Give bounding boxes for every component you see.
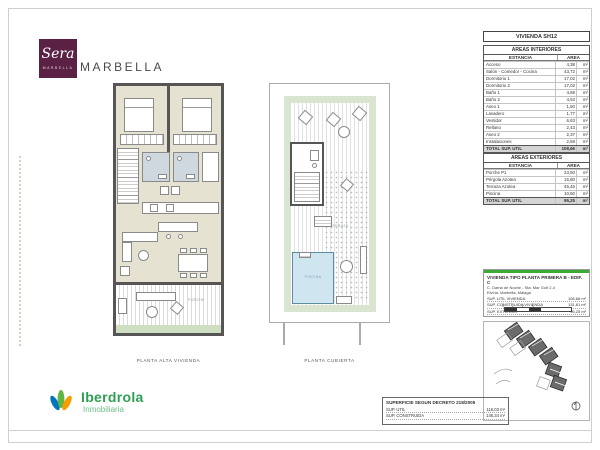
table-title: AREAS EXTERIORES [484,154,589,163]
table-row: Pérgola Azotea15,80m² [484,176,589,183]
cell: m² [576,69,589,75]
coffee-table-icon [138,250,149,261]
chair-icon [190,248,197,253]
cell: 116,03 m² [486,407,505,412]
cell: m² [576,125,589,131]
cell: TOTAL SUP. UTIL [484,198,555,204]
toilet-room [310,150,319,161]
outdoor-table-icon [340,260,353,273]
toilet-icon [177,156,182,161]
sink-icon [186,174,195,179]
cell: 108,66 [555,146,576,152]
footer-brand: Iberdrola Inmobiliaria [47,387,177,427]
scale-bar [504,307,572,312]
dining-table-icon [178,254,208,272]
wardrobe-icon [173,134,217,145]
column-header-area: AREA [557,55,589,60]
table-row: Aseo 22,37m² [484,131,589,138]
pool: PISCINA [292,252,334,304]
cell: m² [576,170,589,176]
porch-deck: PORCHE [116,285,221,325]
cell: 108,66 m² [568,296,586,301]
cell: 43,72 [555,69,576,75]
cell: Instalaciones [484,139,555,145]
terrace-label: TERRAZA [330,224,348,228]
toilet-icon [146,156,151,161]
decree-surface-box: SUPERFICIE SEGUN DECRETO 218/2005 SUP. U… [382,397,509,425]
cell: 17,02 [555,76,576,82]
cell: SUP. UTIL [386,407,405,412]
cell: m² [576,76,589,82]
decree-rows: SUP. UTIL116,03 m²SUP. CONSTRUIDA146,34 … [386,407,505,420]
table-row: Porche P123,50m² [484,169,589,176]
toilet-icon [312,163,317,168]
cell: SUP. UTIL VIVIENDA [487,296,525,301]
dressing-room [202,152,219,182]
table-row: Baño 24,53m² [484,96,589,103]
stool-icon [166,234,171,239]
cell: 23,50 [555,170,576,176]
cell: 4,69 [555,90,576,96]
decree-title: SUPERFICIE SEGUN DECRETO 218/2005 [386,400,505,405]
cell: 10,50 [555,191,576,197]
washer-icon [171,186,180,195]
cell: 1,50 [555,104,576,110]
address-line-2: Elviria, Marbella, Málaga [484,290,589,295]
table-row: TOTAL SUP. UTIL95,25m² [484,197,589,204]
sofa-icon [122,242,132,262]
table-row: Piscina10,50m² [484,190,589,197]
unit-info-title: VIVIENDA TIPO PLANTA PRIMERA B - EDIF. C [484,273,589,285]
surface-summary: SUP. UTIL VIVIENDA108,66 m²SUP. CONSTRUI… [484,296,589,315]
wall [167,86,170,158]
table-row: Rellano2,43m² [484,124,589,131]
cell: Aseo 2 [484,132,555,138]
brand-wordmark: MARBELLA [80,60,164,74]
cell: Baño 2 [484,97,555,103]
oven-icon [150,204,158,212]
roof-plan: TERRAZA PISCINA [269,83,390,323]
cell: m² [576,139,589,145]
cell: 2,69 [555,139,576,145]
table-row: Salón - Comedor - Cocina43,72m² [484,68,589,75]
cell: m² [576,132,589,138]
chair-icon [180,248,187,253]
lounger-icon [170,301,184,315]
cell: m² [576,90,589,96]
cell: Salón - Comedor - Cocina [484,69,555,75]
cell: 17,02 [555,83,576,89]
table-title: AREAS INTERIORES [484,46,589,55]
surface-row: SUP. CONSTRUIDA146,34 m² [386,413,505,419]
cell: m² [576,177,589,183]
cell: m² [576,184,589,190]
chair-icon [180,273,187,278]
cell: m² [576,198,589,204]
column-header-room: ESTANCIA [484,55,557,60]
cell: m² [576,191,589,197]
cell: Terraza Azotea [484,184,555,190]
column-header-room: ESTANCIA [484,163,557,168]
left-plan-caption: PLANTA ALTA VIVIENDA [113,358,224,363]
cell: 2,37 [555,132,576,138]
table-row: Lavadero1,77m² [484,110,589,117]
cell: m² [576,118,589,124]
cell: 45,45 [555,184,576,190]
table-row: Aseo 11,50m² [484,103,589,110]
cell: Pérgola Azotea [484,177,555,183]
stair-core [290,142,324,206]
cell: m² [576,97,589,103]
iberdrola-wordmark: Iberdrola [81,389,144,405]
chair-icon [190,273,197,278]
cell: m² [576,83,589,89]
cell: 95,25 [555,198,576,204]
armchair-icon [120,266,130,276]
table-row: Dormitorio 117,02m² [484,75,589,82]
bed-icon [182,98,212,132]
cell: m² [576,111,589,117]
sofa-icon [122,232,158,242]
table-body: Porche P123,50m²Pérgola Azotea15,80m²Ter… [484,169,589,197]
cell: 15,80 [555,177,576,183]
table-row: Dormitorio 217,02m² [484,82,589,89]
chair-icon [200,248,207,253]
outdoor-sofa-icon [136,292,176,301]
cell: Piscina [484,191,555,197]
footer-divider [9,430,591,431]
stool-icon [178,234,183,239]
cell: m² [576,62,589,68]
cell: Vestidor [484,118,555,124]
table-row: Terraza Azotea45,45m² [484,183,589,190]
sink-icon [158,174,167,179]
cell: 146,34 m² [486,413,505,418]
brand-logo: Sera MARBELLA [39,39,77,78]
cell: Aseo 1 [484,104,555,110]
porch-label: PORCHE [188,298,205,302]
column-header-area: AREA [557,163,589,168]
brand-logo-subtext: MARBELLA [39,66,77,70]
cell: Rellano [484,125,555,131]
brand-logo-script: Sera [39,42,77,66]
cell: Acceso [484,62,555,68]
floor-plan-upper: PORCHE [113,83,224,336]
washer-icon [160,186,169,195]
table-row: Acceso4,38m² [484,61,589,68]
outdoor-table-icon [338,126,350,138]
bed-icon [124,98,154,132]
roof-plan-leg [283,323,285,345]
north-arrow-icon [572,402,580,410]
sink-icon [166,204,174,212]
outdoor-table-icon [146,306,158,318]
bench-icon [360,246,367,274]
right-plan-caption: PLANTA CUBIERTA [269,358,390,363]
cell: Dormitorio 2 [484,83,555,89]
kitchen-island-icon [158,222,198,232]
cell: Dormitorio 1 [484,76,555,82]
plan-sheet: Sera MARBELLA MARBELLA [8,8,592,443]
wardrobe-icon [120,134,164,145]
interior-areas-table: AREAS INTERIORES ESTANCIA AREA Acceso4,3… [483,45,590,160]
cell: m² [576,104,589,110]
cell: TOTAL SUP. UTIL [484,146,555,152]
cell: SUP. CONSTRUIDA [386,413,424,418]
table-body: Acceso4,38m²Salón - Comedor - Cocina43,7… [484,61,589,145]
iberdrola-subtitle: Inmobiliaria [83,405,124,414]
table-totals: TOTAL SUP. UTIL95,25m² [484,197,589,204]
cell: 95,25 m² [570,309,586,314]
stairs-icon [117,148,139,204]
roof-plan-leg [359,323,361,345]
cell: Porche P1 [484,170,555,176]
cell: Lavadero [484,111,555,117]
unit-title: VIVIENDA SH12 [483,31,590,42]
pool-label: PISCINA [293,275,333,279]
lounger-icon [118,298,127,314]
unit-info-box: VIVIENDA TIPO PLANTA PRIMERA B - EDIF. C… [483,269,590,317]
margin-microtext [19,156,21,346]
planter-strip [116,325,221,333]
cell: 1,77 [555,111,576,117]
table-row: TOTAL SUP. UTIL108,66m² [484,145,589,152]
cell: m² [576,146,589,152]
stairs-icon [294,172,320,202]
cell: 6,63 [555,118,576,124]
cell: 4,38 [555,62,576,68]
table-row: Instalaciones2,69m² [484,138,589,145]
cell: 2,43 [555,125,576,131]
chair-icon [200,273,207,278]
pool-steps-icon [299,252,311,258]
table-row: Vestidor6,63m² [484,117,589,124]
bench-icon [336,296,352,304]
exterior-areas-table: AREAS EXTERIORES ESTANCIA AREA Porche P1… [483,153,590,205]
table-row: Baño 14,69m² [484,89,589,96]
iberdrola-logo-icon [47,387,77,415]
cell: Baño 1 [484,90,555,96]
cell: 4,53 [555,97,576,103]
